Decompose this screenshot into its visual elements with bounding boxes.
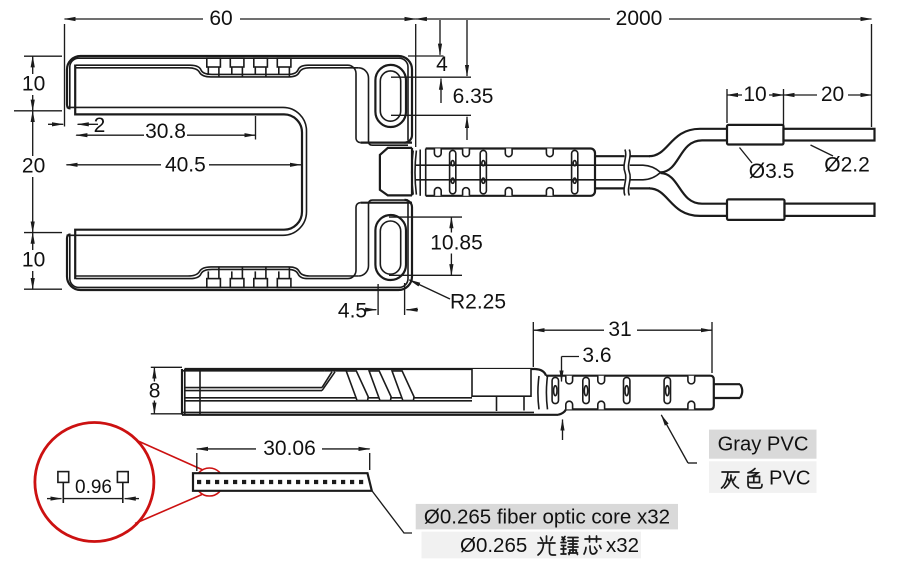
svg-text:4.5: 4.5 — [338, 300, 367, 323]
svg-text:Ø2.2: Ø2.2 — [824, 153, 870, 176]
svg-text:0.96: 0.96 — [75, 477, 112, 498]
svg-text:x32: x32 — [606, 534, 639, 557]
svg-text:Gray PVC: Gray PVC — [718, 434, 809, 456]
svg-text:10: 10 — [22, 73, 45, 96]
svg-text:60: 60 — [209, 7, 232, 30]
svg-text:6.35: 6.35 — [453, 85, 494, 108]
svg-text:31: 31 — [608, 318, 631, 341]
svg-text:3.6: 3.6 — [582, 344, 611, 367]
svg-text:40.5: 40.5 — [165, 153, 206, 176]
svg-text:10.85: 10.85 — [430, 232, 483, 255]
svg-text:8: 8 — [149, 379, 161, 402]
svg-text:2: 2 — [94, 114, 106, 137]
svg-text:30.06: 30.06 — [263, 437, 316, 460]
svg-text:20: 20 — [821, 83, 844, 106]
svg-text:PVC: PVC — [769, 468, 811, 490]
svg-text:Ø0.265 fiber optic core x32: Ø0.265 fiber optic core x32 — [424, 505, 670, 528]
svg-text:R2.25: R2.25 — [450, 291, 506, 314]
svg-text:Ø3.5: Ø3.5 — [749, 160, 795, 183]
svg-text:10: 10 — [743, 83, 766, 106]
svg-text:20: 20 — [22, 155, 45, 178]
svg-text:Ø0.265: Ø0.265 — [460, 534, 527, 557]
svg-text:4: 4 — [436, 53, 448, 76]
svg-text:30.8: 30.8 — [145, 120, 186, 143]
svg-text:10: 10 — [22, 249, 45, 272]
svg-text:2000: 2000 — [616, 7, 663, 30]
